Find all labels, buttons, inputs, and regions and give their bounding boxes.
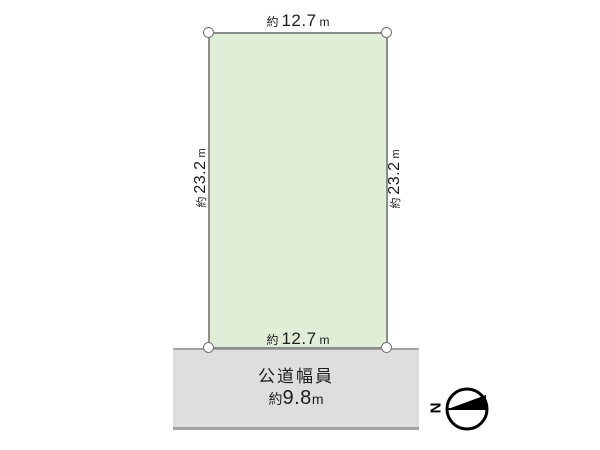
site-plan-diagram: 公道幅員 約9.8m 約12.7m 約12.7m 約23.2m 約23.2m N — [0, 0, 600, 450]
left-dimension-prefix: 約 — [196, 197, 208, 208]
bottom-dimension-unit: m — [320, 333, 330, 347]
bottom-dimension-label: 約12.7m — [208, 329, 388, 349]
top-dimension-prefix: 約 — [266, 15, 278, 29]
corner-marker-bottom-left — [203, 342, 214, 353]
north-compass — [444, 386, 490, 432]
road-width-label: 約9.8m — [269, 387, 324, 411]
north-letter-label: N — [428, 403, 445, 414]
left-dimension-unit: m — [196, 148, 208, 157]
land-parcel — [208, 32, 388, 349]
road-width-value: 9.8 — [283, 387, 312, 409]
right-dimension-unit: m — [390, 149, 402, 158]
left-dimension-value: 23.2 — [192, 161, 209, 194]
bottom-dimension-value: 12.7 — [281, 329, 316, 348]
top-dimension-unit: m — [320, 15, 330, 29]
corner-marker-top-left — [203, 27, 214, 38]
top-dimension-value: 12.7 — [281, 11, 316, 30]
north-compass-graphic — [444, 386, 490, 432]
bottom-dimension-prefix: 約 — [266, 333, 278, 347]
right-dimension-prefix: 約 — [390, 198, 402, 209]
top-dimension-label: 約12.7m — [208, 11, 388, 31]
corner-marker-top-right — [381, 27, 392, 38]
corner-marker-bottom-right — [381, 342, 392, 353]
right-dimension-value: 23.2 — [386, 162, 403, 195]
road-name-label: 公道幅員 — [258, 366, 334, 387]
road-width-unit: m — [312, 391, 324, 407]
road-area: 公道幅員 約9.8m — [173, 348, 419, 430]
road-width-prefix: 約 — [269, 391, 283, 407]
